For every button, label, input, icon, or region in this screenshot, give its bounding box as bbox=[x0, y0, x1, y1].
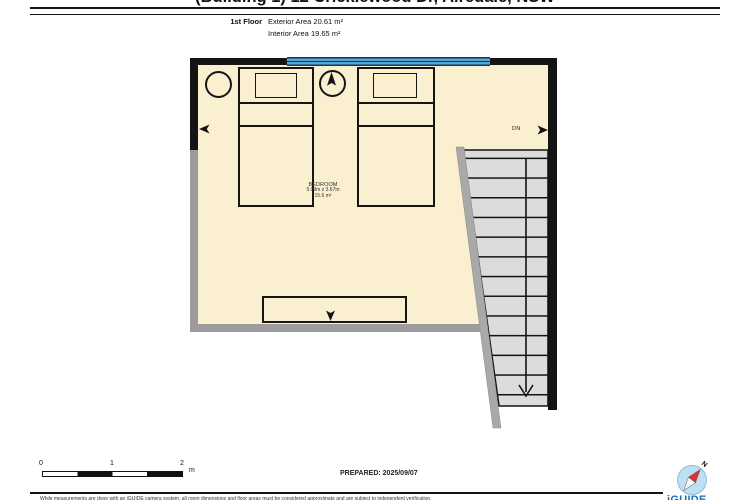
floor-plan-page: (Building 1) 12 Cricklewood Dr, Airedale… bbox=[0, 0, 750, 500]
scale-bar bbox=[42, 471, 183, 477]
room-area: 15.6 m² bbox=[263, 194, 383, 200]
scale-tick: 2 bbox=[177, 460, 187, 467]
scale-tick: 1 bbox=[107, 460, 117, 467]
wall-arrow-down-icon bbox=[326, 311, 335, 322]
floor-label: 1st Floor bbox=[160, 18, 262, 26]
title-rule-bottom bbox=[30, 14, 720, 15]
compass-north-label: N bbox=[700, 460, 708, 469]
marker-needle-icon bbox=[327, 72, 336, 86]
wall-arrow-right-icon bbox=[538, 126, 549, 135]
wall-arrow-left-icon bbox=[199, 125, 210, 134]
compass: N bbox=[668, 448, 716, 500]
scale-unit: m bbox=[189, 467, 195, 474]
exterior-area: Exterior Area 20.61 m² bbox=[268, 18, 343, 26]
footer-rule bbox=[30, 492, 663, 494]
scale-tick: 0 bbox=[36, 460, 46, 467]
interior-area: Interior Area 19.65 m² bbox=[268, 30, 341, 38]
title-rule-top bbox=[30, 7, 720, 9]
stairs-dn-label: DN bbox=[512, 126, 521, 132]
prepared-date: PREPARED: 2025/09/07 bbox=[340, 470, 418, 477]
room-label: BEDROOM 5.09m x 3.67m 15.6 m² bbox=[263, 182, 383, 200]
disclaimer-text: While measurements are done with an iGUI… bbox=[40, 496, 700, 500]
